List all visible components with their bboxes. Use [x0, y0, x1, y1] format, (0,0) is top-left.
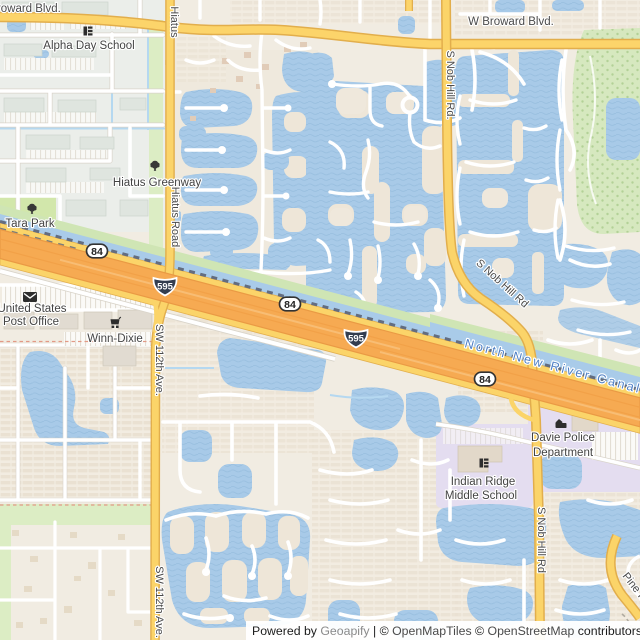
svg-text:84: 84 — [479, 374, 491, 386]
svg-text:595: 595 — [348, 333, 365, 344]
svg-text:Winn-Dixie: Winn-Dixie — [87, 333, 143, 345]
svg-text:SW 112th Ave.: SW 112th Ave. — [153, 324, 165, 396]
svg-text:Department: Department — [533, 447, 594, 459]
svg-text:84: 84 — [91, 246, 103, 258]
svg-text:Tara Park: Tara Park — [5, 218, 54, 230]
svg-text:Indian Ridge: Indian Ridge — [451, 476, 516, 488]
svg-text:Powered by Geoapify | © OpenMa: Powered by Geoapify | © OpenMapTiles © O… — [252, 624, 640, 638]
svg-text:W Broward Blvd.: W Broward Blvd. — [468, 16, 554, 28]
svg-text:SW 112th Ave.: SW 112th Ave. — [153, 566, 165, 638]
svg-text:W Broward Blvd.: W Broward Blvd. — [0, 3, 61, 15]
svg-text:S Nob Hill Rd.: S Nob Hill Rd. — [444, 50, 456, 119]
svg-text:84: 84 — [284, 299, 296, 311]
svg-text:Hiatus Road: Hiatus Road — [169, 187, 181, 248]
svg-text:Davie Police: Davie Police — [531, 432, 595, 444]
svg-text:Hiatus Greenway: Hiatus Greenway — [113, 177, 201, 189]
svg-text:Post Office: Post Office — [3, 316, 59, 328]
svg-text:United States: United States — [0, 303, 67, 315]
svg-text:Alpha Day School: Alpha Day School — [43, 40, 134, 52]
svg-text:595: 595 — [157, 281, 174, 292]
svg-text:S Nob Hill Rd: S Nob Hill Rd — [535, 507, 547, 573]
svg-text:Middle School: Middle School — [445, 490, 517, 502]
svg-text:Hiatus: Hiatus — [168, 6, 180, 38]
